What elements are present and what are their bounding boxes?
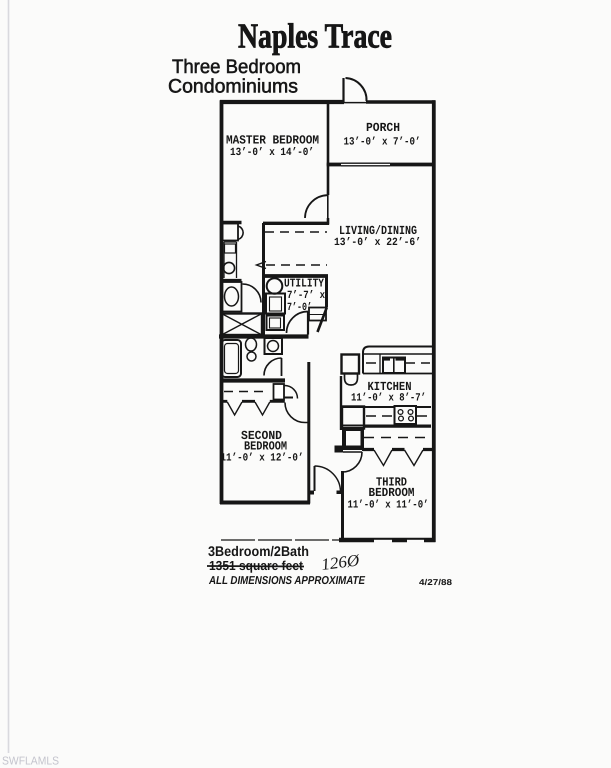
svg-text:LIVING/DINING: LIVING/DINING [339,224,417,238]
svg-text:11’-0’ x 11’-0’: 11’-0’ x 11’-0’ [348,500,429,512]
svg-text:13’-0’ x 7’-0’: 13’-0’ x 7’-0’ [344,137,421,149]
svg-text:7’-7’ x: 7’-7’ x [287,290,325,302]
svg-text:13’-0’ x 22’-6’: 13’-0’ x 22’-6’ [334,237,421,249]
svg-text:11’-0’ x 8’-7’: 11’-0’ x 8’-7’ [351,393,426,405]
svg-text:UTILITY: UTILITY [284,277,325,291]
svg-text:MASTER BEDROOM: MASTER BEDROOM [226,134,319,148]
svg-text:Condominiums: Condominiums [168,76,298,98]
svg-text:ALL DIMENSIONS APPROXIMATE: ALL DIMENSIONS APPROXIMATE [208,575,365,587]
svg-text:7’-0’: 7’-0’ [287,302,312,314]
svg-text:PORCH: PORCH [366,121,400,135]
svg-text:126Ø: 126Ø [320,550,361,574]
svg-text:BEDROOM: BEDROOM [244,440,287,454]
svg-text:4/27/88: 4/27/88 [419,577,452,587]
svg-text:Naples Trace: Naples Trace [238,17,392,56]
svg-text:BEDROOM: BEDROOM [369,486,415,500]
svg-text:13’-0’ x 14’-0’: 13’-0’ x 14’-0’ [230,147,314,159]
svg-text:SWFLAMLS: SWFLAMLS [2,756,59,768]
svg-text:3Bedroom/2Bath: 3Bedroom/2Bath [208,543,309,559]
svg-text:11’-0’ x 12’-0’: 11’-0’ x 12’-0’ [221,453,304,465]
